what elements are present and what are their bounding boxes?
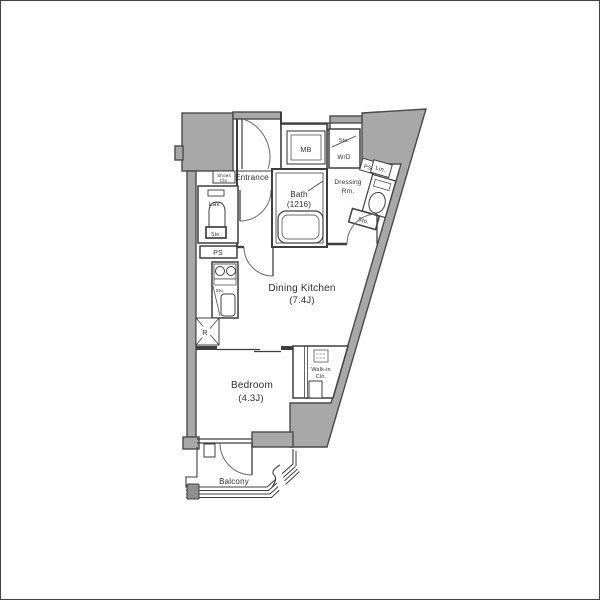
bathtub-inner [282, 215, 319, 239]
walk-in-closet-label-2: Clo. [316, 374, 327, 380]
shoes-closet-label-2: Clo. [220, 178, 229, 183]
dining-kitchen-size: (7.4J) [289, 295, 314, 306]
walk-in-closet-label-1: Walk-in [311, 367, 331, 373]
entrance-label: Entrance [235, 173, 269, 182]
dining-kitchen-label: Dining Kitchen [268, 283, 335, 294]
bedroom-bottom-wall [252, 432, 293, 447]
lavatory-label: Lav. [209, 201, 222, 208]
floor-plan-canvas: PS Lin. Sto. [0, 0, 600, 600]
pipe-space-label: PS [213, 250, 223, 257]
closet-hanger-area [309, 381, 322, 398]
window-side-panel [204, 444, 215, 457]
toilet-cistern [208, 190, 224, 196]
meter-box-label: MB [301, 147, 312, 154]
washer-dryer-label: W/D [337, 154, 350, 161]
entrance-top-wall [233, 112, 281, 119]
dressing-room-label-1: Dressing [334, 179, 361, 186]
stove-burner-left [216, 267, 225, 276]
stove-burner-right [227, 267, 236, 276]
top-left-column [182, 113, 233, 171]
dressing-room-label-2: Rm. [342, 188, 355, 195]
grill-drawer [214, 279, 236, 285]
closet-top-wall [330, 116, 362, 123]
bedroom-label: Bedroom [231, 380, 273, 391]
left-exterior-wall [187, 171, 196, 444]
bath-size: (1216) [287, 200, 311, 209]
floor-plan-svg: PS Lin. Sto. [0, 0, 600, 600]
kitchen-storage-label: Sto. [216, 288, 225, 293]
closet-storage-label: Sto. [339, 138, 350, 144]
closet-shelf [314, 350, 328, 362]
refrigerator-label: R [202, 328, 208, 337]
bedroom-size: (4.3J) [238, 393, 263, 404]
balcony-equipment-unit [187, 484, 199, 499]
toilet-storage-label: Sto. [211, 232, 221, 238]
balcony-label: Balcony [219, 477, 249, 486]
bath-label: Bath [290, 190, 307, 199]
kitchen-sink [221, 294, 235, 316]
washer-dryer-closet [329, 129, 360, 168]
left-column-notch [175, 146, 183, 160]
